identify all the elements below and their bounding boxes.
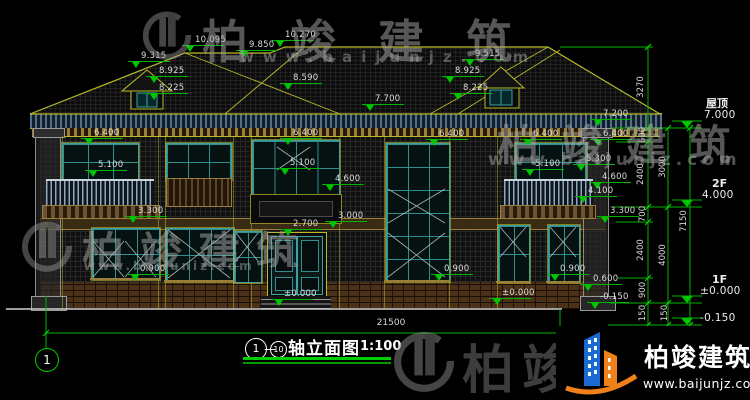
elevation-label: 4.100	[588, 187, 613, 196]
title-underline-2	[243, 362, 391, 364]
elevation-label: 0.900	[444, 265, 469, 274]
level-label: 1F	[712, 274, 727, 285]
dimension-text: 4000	[659, 244, 668, 266]
dimension-text: 900	[639, 282, 648, 298]
elevation-label: 5.100	[290, 159, 315, 168]
dimension-text: 7150	[680, 210, 689, 232]
dimension-text: 3000	[659, 156, 668, 178]
title-axis-bubble-10: 10	[270, 341, 287, 358]
drawing-scale: 1:100	[360, 339, 401, 354]
elevation-label: 6.400	[94, 129, 119, 138]
elevation-label: -0.150	[600, 293, 629, 302]
dimension-text: 2400	[637, 163, 646, 185]
elevation-label: 5.300	[586, 155, 611, 164]
level-value: 7.000	[704, 110, 736, 121]
dimension-text: 600	[639, 127, 648, 143]
dimension-total: 21500	[377, 319, 406, 328]
elevation-label: 6.400	[533, 130, 558, 139]
level-label: 屋顶	[706, 98, 728, 109]
dimension-text: 3270	[637, 76, 646, 98]
dimension-text: 150	[639, 305, 648, 321]
elevation-label: 3.000	[338, 212, 363, 221]
axis-grid-bubble: 1	[35, 348, 59, 372]
elevation-label: ±0.000	[284, 290, 317, 299]
elevation-label: 8.225	[463, 84, 488, 93]
level-value: 4.000	[702, 190, 734, 201]
elevation-label: 9.515	[475, 50, 500, 59]
elevation-label: 5.100	[535, 160, 560, 169]
elevation-label: 6.400	[439, 130, 464, 139]
elevation-label: 9.315	[141, 52, 166, 61]
title-underline	[243, 357, 391, 360]
brand-logo-box: 柏竣建筑 www.baijunjz.com	[556, 326, 750, 400]
elevation-label: 0.900	[140, 265, 165, 274]
dimension-text: 700	[639, 206, 648, 222]
dimension-text: 2400	[637, 239, 646, 261]
brand-logo-icon	[558, 326, 642, 398]
cad-canvas[interactable]: 9.31510.0959.85010.2708.9258.2258.5909.5…	[0, 0, 750, 400]
elevation-label: 4.600	[335, 175, 360, 184]
elevation-label: 4.600	[602, 173, 627, 182]
level-value: ±0.000	[700, 286, 741, 297]
elevation-label: 6.400	[603, 130, 628, 139]
elevation-label: 8.225	[159, 84, 184, 93]
elevation-label: 9.850	[249, 41, 274, 50]
elevation-label: 7.700	[375, 95, 400, 104]
brand-url: www.baijunjz.com	[643, 376, 750, 391]
elevation-label: 10.095	[195, 36, 226, 45]
elevation-label: 3.300	[610, 207, 635, 216]
elevation-label: 8.590	[293, 74, 318, 83]
elevation-label: 0.900	[560, 265, 585, 274]
elevation-label: 2.700	[293, 220, 318, 229]
elevation-label: 3.300	[138, 207, 163, 216]
elevation-label: 7.200	[603, 110, 628, 119]
level-label: 2F	[712, 178, 727, 189]
elevation-label: 6.400	[293, 129, 318, 138]
elevation-label: 5.100	[98, 161, 123, 170]
drawing-title: 轴立面图	[288, 334, 360, 359]
elevation-label: ±0.000	[502, 289, 535, 298]
elevation-label: 8.925	[159, 67, 184, 76]
level-value: -0.150	[700, 313, 736, 324]
elevation-label: 8.925	[455, 67, 480, 76]
elevation-label: 10.270	[285, 31, 316, 40]
brand-name: 柏竣建筑	[644, 338, 750, 374]
dimension-text: 150	[661, 305, 670, 321]
elevation-label: 0.600	[593, 275, 618, 284]
